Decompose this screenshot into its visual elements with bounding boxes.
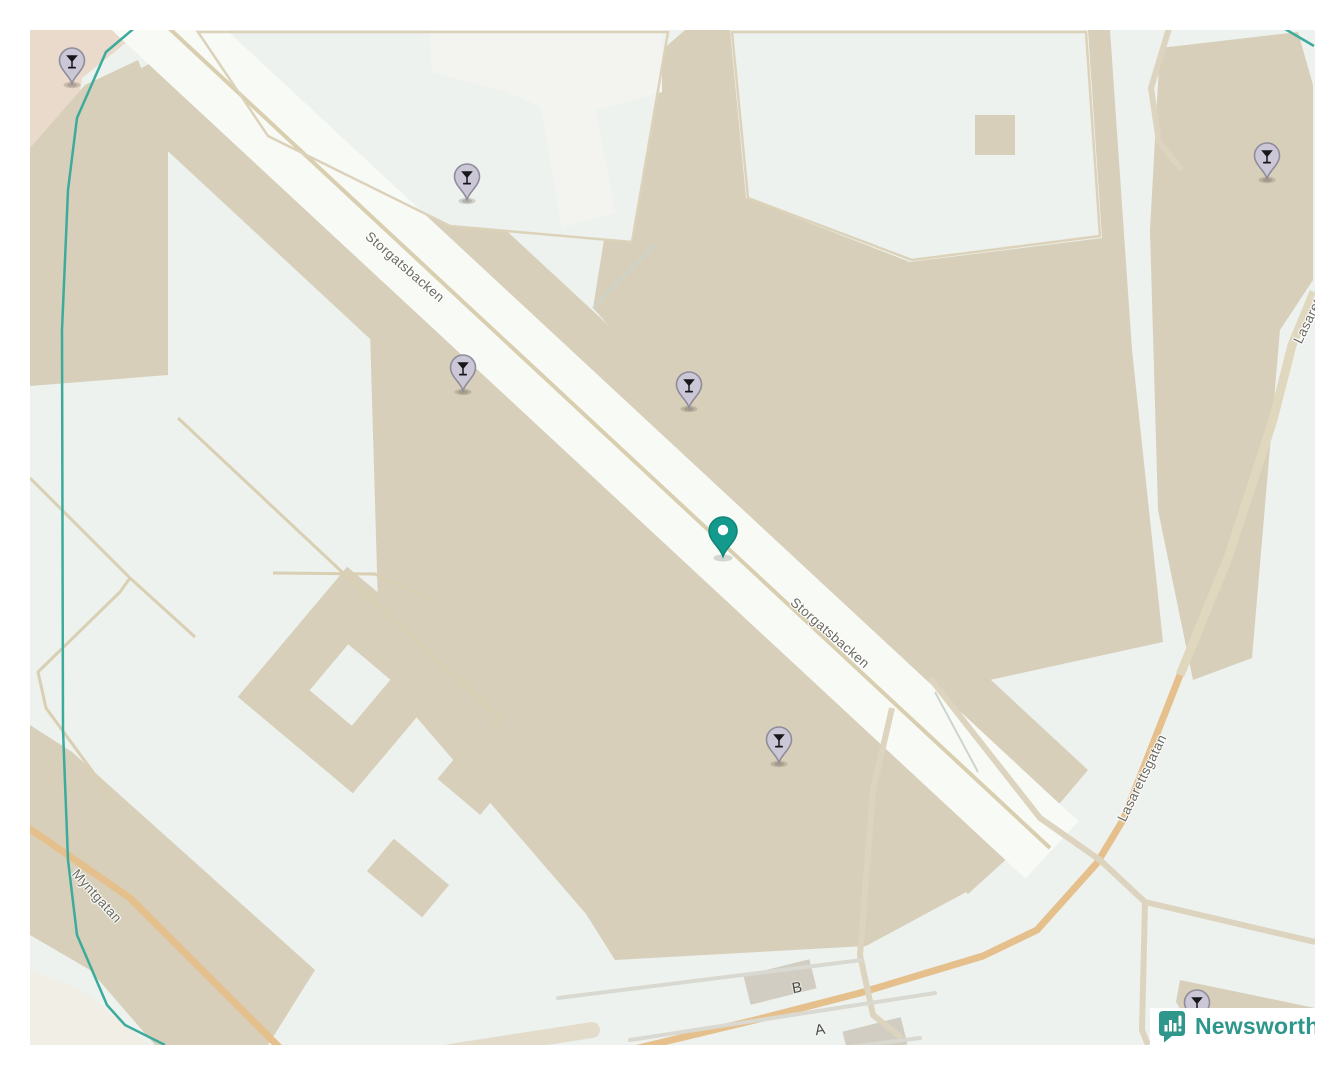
poi-marker[interactable] (452, 162, 482, 211)
logo-text: Newsworthy (1195, 1013, 1315, 1040)
poi-marker[interactable] (674, 370, 704, 419)
map-base-tiles (30, 30, 1315, 1045)
map-canvas[interactable]: StorgatsbackenStorgatsbackenMyntgatanLas… (30, 30, 1315, 1045)
highlight-marker[interactable] (706, 515, 740, 568)
page: StorgatsbackenStorgatsbackenMyntgatanLas… (0, 0, 1340, 1074)
newsworthy-logo[interactable]: Newsworthy (1150, 1008, 1315, 1045)
poi-marker[interactable] (448, 353, 478, 402)
newsworthy-icon (1158, 1010, 1186, 1043)
highlight-dot-icon (718, 525, 728, 535)
map-building (975, 115, 1015, 155)
poi-marker[interactable] (1252, 141, 1282, 190)
poi-marker[interactable] (764, 725, 794, 774)
poi-marker[interactable] (57, 46, 87, 95)
